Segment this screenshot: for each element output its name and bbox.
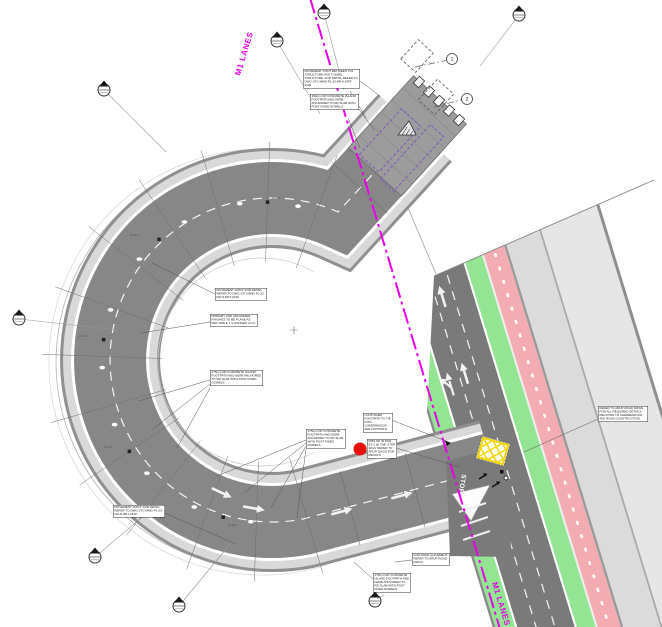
site-plan-canvas: RL 46.8 RL 46.8 RL 46.8 RL 46.8 RL 46.8: [0, 0, 662, 627]
section-marker: [173, 597, 185, 613]
section-marker: [369, 592, 381, 608]
section-marker: [98, 81, 110, 97]
spot-level-label: RL 46.8: [104, 446, 113, 449]
loop-center-cross: [290, 326, 298, 334]
section-marker: [89, 548, 101, 564]
section-marker: [271, 32, 283, 48]
dashed-structure-outline: [401, 40, 433, 73]
spot-level-label: RL 46.8: [79, 335, 88, 338]
spot-level-label: RL 46.8: [228, 524, 237, 527]
spot-level-label: RL 46.8: [272, 197, 281, 200]
red-marker-dot: [354, 443, 367, 456]
section-marker: [318, 4, 330, 20]
loop-ramp: RL 46.8 RL 46.8 RL 46.8 RL 46.8 RL 46.8: [42, 128, 492, 582]
section-marker: [13, 310, 25, 326]
m1-lanes-label-top: M1 LANES: [233, 31, 255, 77]
spot-level-label: RL 46.8: [130, 234, 139, 237]
site-plan-drawing: RL 46.8 RL 46.8 RL 46.8 RL 46.8 RL 46.8: [0, 0, 662, 627]
grid-leader: [415, 61, 446, 68]
grid-bubble-label: 1: [451, 57, 454, 63]
section-marker: [513, 6, 525, 22]
grid-bubble-label: 2: [466, 97, 469, 103]
straight-arrow-marking: [419, 290, 433, 313]
